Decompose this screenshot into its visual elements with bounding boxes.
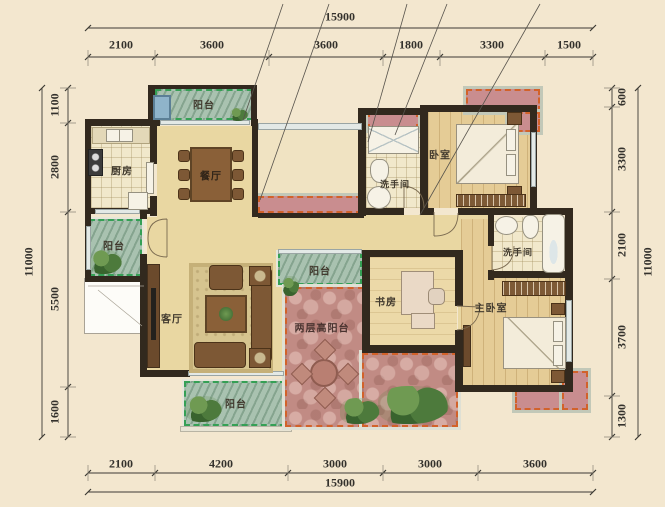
bedroom1-pillow <box>506 129 516 151</box>
room-label-double-height-balcony: 两层高阳台 <box>295 320 350 335</box>
wall <box>455 330 463 392</box>
master-window <box>566 300 572 362</box>
kitchen-sink <box>106 129 133 142</box>
tv <box>151 288 156 340</box>
wall <box>140 254 147 376</box>
wall <box>150 119 157 164</box>
wall <box>362 250 463 257</box>
room-label-balcony-top: 阳台 <box>193 97 215 112</box>
washer <box>153 95 171 120</box>
bedroom1-window <box>531 132 536 187</box>
dim-top-seg: 3300 <box>480 38 504 53</box>
wall <box>258 213 364 218</box>
armchair-top <box>209 265 243 290</box>
dining-chair <box>232 188 244 200</box>
wall <box>358 208 404 215</box>
dim-right-seg: 1300 <box>615 404 630 428</box>
stove <box>88 149 103 176</box>
wall <box>252 119 258 217</box>
kitchen-door-leaf <box>146 162 154 194</box>
dim-top-seg: 2100 <box>109 38 133 53</box>
dim-top-seg: 3600 <box>314 38 338 53</box>
dim-right-seg: 3300 <box>615 147 630 171</box>
bedroom1-pillow <box>506 154 516 176</box>
wall <box>85 276 148 282</box>
bedroom1-wardrobe <box>456 194 526 207</box>
bath2-tub <box>542 214 565 273</box>
room-label-balcony-bottom: 阳台 <box>225 396 247 411</box>
dining-chair <box>178 150 190 162</box>
coffee-table-plant <box>219 307 233 321</box>
room-label-balcony-left: 阳台 <box>103 238 125 253</box>
fridge <box>128 192 148 210</box>
dim-top-total: 15900 <box>325 10 355 25</box>
room-label-dining: 餐厅 <box>200 168 222 183</box>
dining-chair <box>232 169 244 181</box>
lightwell-railing <box>258 123 362 130</box>
wall <box>455 385 573 392</box>
floor-plan-canvas: 阳台 厨房 餐厅 洗手间 卧室 阳台 客厅 阳台 两层高阳台 书房 洗手间 主卧… <box>0 0 665 507</box>
study-desk-return <box>411 313 435 329</box>
dim-bottom-seg: 3600 <box>523 457 547 472</box>
dim-left-seg: 1100 <box>48 93 63 116</box>
dining-chair <box>178 169 190 181</box>
master-nightstand <box>551 303 565 315</box>
master-nightstand <box>551 370 565 383</box>
wall <box>148 85 257 89</box>
dim-right-seg: 3700 <box>615 325 630 349</box>
dining-chair <box>178 188 190 200</box>
open-shaft <box>84 278 146 334</box>
dim-right-seg: 2100 <box>615 233 630 257</box>
dim-left-seg: 1600 <box>48 400 63 424</box>
balcony-bottom-sill <box>180 426 292 432</box>
master-pillow <box>553 321 563 342</box>
wall <box>358 108 426 115</box>
study-chair <box>428 288 445 305</box>
wall <box>140 370 190 377</box>
wall <box>140 213 147 219</box>
wall <box>426 208 434 215</box>
bath2-toilet <box>522 215 539 239</box>
wall <box>455 250 463 306</box>
dim-top-seg: 3600 <box>200 38 224 53</box>
dining-chair <box>232 150 244 162</box>
dim-bottom-seg: 2100 <box>109 457 133 472</box>
room-label-master-bedroom: 主卧室 <box>475 300 508 315</box>
room-label-living: 客厅 <box>161 311 183 326</box>
room-label-balcony-mid: 阳台 <box>309 263 331 278</box>
patio-table <box>310 359 338 387</box>
bedroom1-nightstand <box>507 112 522 125</box>
dim-left-total: 11000 <box>22 247 37 276</box>
lightwell-floor <box>258 130 362 196</box>
bath1-tub <box>368 126 419 154</box>
bath2-sink <box>495 216 518 235</box>
wall <box>362 257 370 353</box>
room-label-bath1: 洗手间 <box>380 178 410 191</box>
wall <box>150 196 157 216</box>
side-table-bottom <box>249 348 271 368</box>
planter-lightwell <box>258 196 362 213</box>
dim-right-seg: 600 <box>615 88 630 106</box>
room-label-kitchen: 厨房 <box>111 163 133 178</box>
wall <box>488 212 494 246</box>
dim-top-seg: 1500 <box>557 38 581 53</box>
dim-bottom-seg: 3000 <box>323 457 347 472</box>
dim-right-total: 11000 <box>641 247 656 276</box>
wall <box>362 345 463 353</box>
dim-bottom-seg: 4200 <box>209 457 233 472</box>
sofa-bottom <box>194 342 246 368</box>
wall <box>420 105 428 215</box>
master-pillow <box>553 345 563 366</box>
dim-top-seg: 1800 <box>399 38 423 53</box>
room-label-study: 书房 <box>375 294 397 309</box>
living-midbalcony-slider <box>278 249 362 254</box>
dim-left-seg: 2800 <box>48 155 63 179</box>
side-table-top <box>249 266 271 286</box>
room-label-bath2: 洗手间 <box>503 246 533 259</box>
room-label-bedroom1: 卧室 <box>429 147 451 162</box>
wall <box>420 105 537 112</box>
dim-bottom-seg: 3000 <box>418 457 442 472</box>
master-wardrobe <box>502 281 566 296</box>
master-tv-cabinet <box>463 325 471 367</box>
dim-left-seg: 5500 <box>48 287 63 311</box>
dim-bottom-total: 15900 <box>325 476 355 491</box>
